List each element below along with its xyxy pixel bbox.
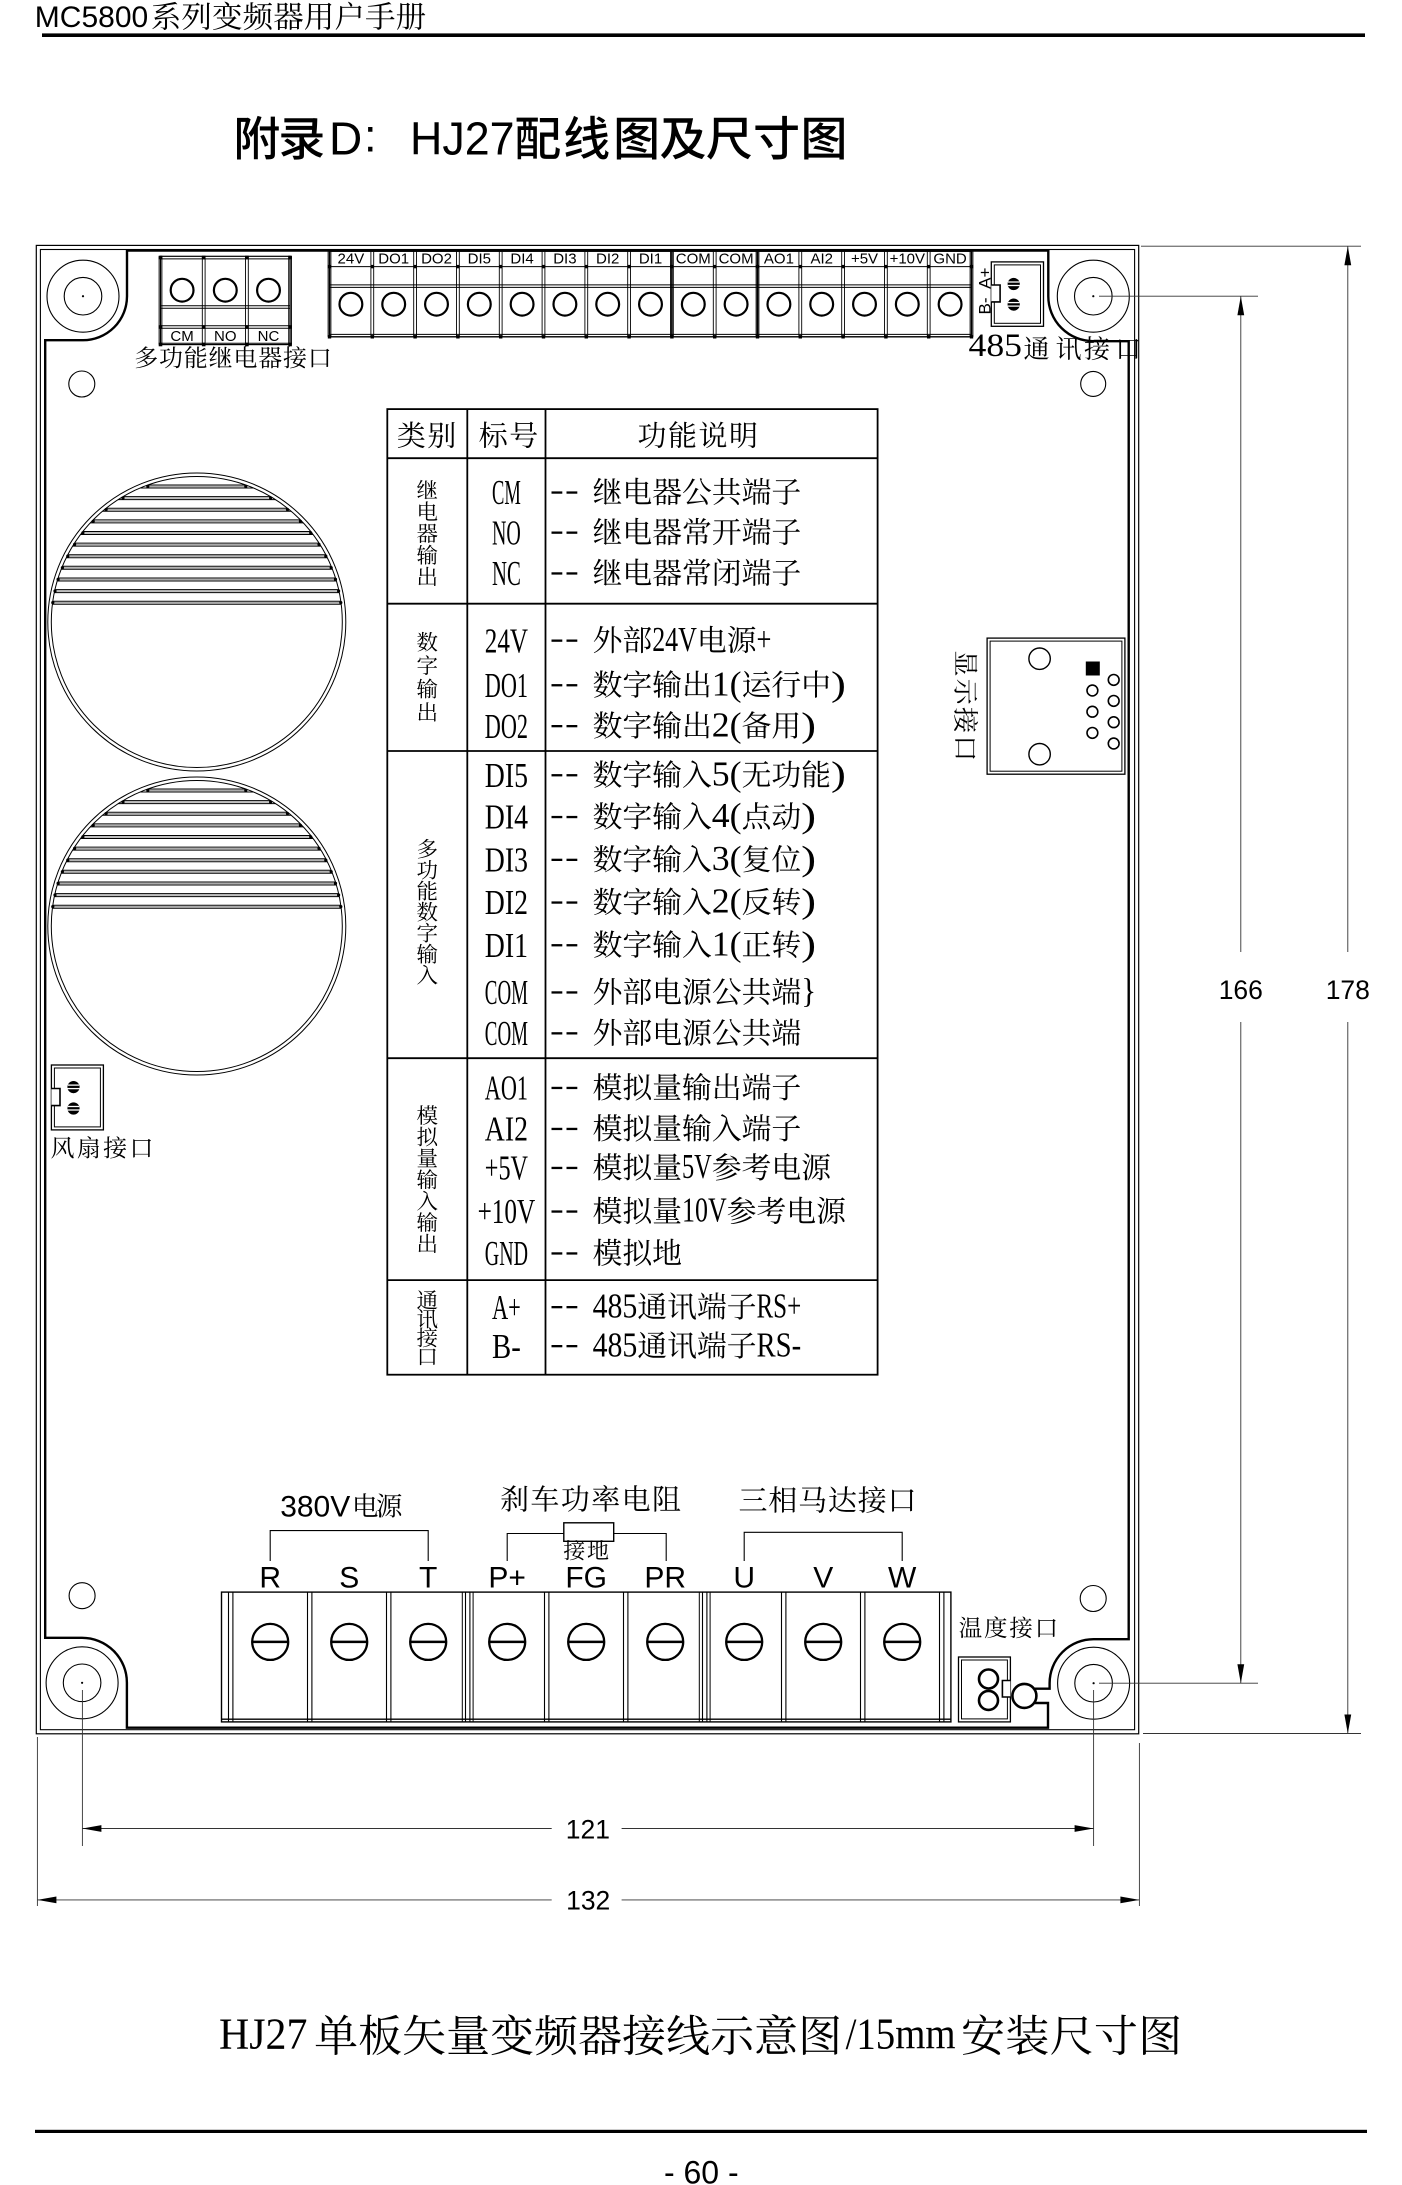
svg-text:COM: COM: [676, 251, 711, 268]
svg-text:485: 485: [593, 1286, 638, 1325]
svg-text:W: W: [888, 1562, 917, 1595]
svg-text:): ): [831, 664, 846, 703]
svg-text:GND: GND: [933, 251, 967, 268]
svg-text:24V: 24V: [485, 621, 528, 660]
svg-text:DI2: DI2: [485, 883, 528, 922]
svg-text:DI5: DI5: [468, 251, 491, 268]
svg-text:NO: NO: [492, 513, 521, 552]
svg-text:AO1: AO1: [764, 251, 794, 268]
svg-text:DI5: DI5: [485, 756, 528, 795]
svg-text:V: V: [813, 1562, 833, 1595]
svg-text:R: R: [259, 1562, 281, 1595]
svg-text:GND: GND: [485, 1234, 528, 1273]
svg-text:+: +: [757, 620, 772, 659]
svg-text:PR: PR: [644, 1562, 686, 1595]
svg-text:DI4: DI4: [485, 798, 528, 837]
svg-text:DI3: DI3: [553, 251, 576, 268]
svg-text:S: S: [339, 1562, 359, 1595]
svg-text:DI3: DI3: [485, 841, 528, 880]
svg-text:5(: 5(: [712, 754, 742, 793]
svg-text:NO: NO: [214, 328, 237, 345]
svg-text:): ): [831, 754, 846, 793]
svg-text:10V: 10V: [682, 1191, 727, 1230]
svg-text:): ): [801, 796, 816, 835]
svg-text:): ): [801, 839, 816, 878]
svg-text:- 60 -: - 60 -: [664, 2155, 739, 2185]
svg-text:DO2: DO2: [421, 251, 452, 268]
svg-text:2(: 2(: [712, 705, 742, 744]
svg-text:): ): [801, 705, 816, 744]
svg-text:B-: B-: [976, 298, 995, 315]
svg-text:COM: COM: [719, 251, 754, 268]
svg-text:T: T: [419, 1562, 437, 1595]
svg-text:485: 485: [593, 1325, 638, 1364]
svg-text:RS-: RS-: [757, 1325, 802, 1364]
svg-text:B-: B-: [492, 1327, 521, 1366]
svg-text:3(: 3(: [712, 839, 742, 878]
svg-text:NC: NC: [258, 328, 280, 345]
svg-text:+5V: +5V: [851, 251, 878, 268]
svg-text:DO1: DO1: [485, 666, 528, 705]
svg-text:+10V: +10V: [478, 1192, 536, 1231]
svg-text:380V: 380V: [280, 1491, 350, 1524]
svg-text:D: D: [329, 112, 362, 164]
svg-text:/15mm: /15mm: [846, 2010, 956, 2059]
svg-text:FG: FG: [565, 1562, 607, 1595]
svg-text:MC5800: MC5800: [35, 1, 148, 34]
svg-text:AI2: AI2: [485, 1110, 528, 1149]
svg-text:): ): [801, 882, 816, 921]
svg-text:HJ27: HJ27: [219, 2010, 307, 2059]
svg-text:24V: 24V: [652, 620, 697, 659]
svg-text:DI1: DI1: [485, 926, 528, 965]
svg-text:5V: 5V: [682, 1147, 712, 1186]
svg-text:24V: 24V: [338, 251, 365, 268]
svg-text:P+: P+: [488, 1562, 526, 1595]
svg-text:AI2: AI2: [810, 251, 833, 268]
svg-text:}: }: [801, 972, 816, 1011]
svg-text:RS+: RS+: [757, 1286, 802, 1325]
svg-text:DI2: DI2: [596, 251, 619, 268]
svg-text:DO1: DO1: [378, 251, 409, 268]
svg-text:1(: 1(: [712, 924, 742, 963]
svg-text:DO2: DO2: [485, 707, 528, 746]
svg-text:COM: COM: [485, 1014, 528, 1053]
svg-text:132: 132: [566, 1885, 610, 1915]
svg-text:1(: 1(: [712, 664, 742, 703]
svg-text:): ): [801, 924, 816, 963]
svg-text:A+: A+: [492, 1288, 521, 1327]
svg-text:CM: CM: [492, 473, 521, 512]
svg-text:NC: NC: [492, 554, 521, 593]
svg-text:COM: COM: [485, 973, 528, 1012]
svg-text:CM: CM: [170, 328, 193, 345]
svg-text:AO1: AO1: [485, 1069, 528, 1108]
svg-text:166: 166: [1219, 975, 1263, 1005]
svg-text:HJ27: HJ27: [410, 112, 515, 164]
svg-text:485: 485: [969, 328, 1023, 364]
svg-text:+10V: +10V: [890, 251, 925, 268]
svg-text:178: 178: [1326, 975, 1370, 1005]
svg-text:121: 121: [566, 1814, 610, 1844]
svg-text:4(: 4(: [712, 796, 742, 835]
svg-text:DI4: DI4: [510, 251, 533, 268]
svg-text:+5V: +5V: [485, 1149, 528, 1188]
svg-text:2(: 2(: [712, 882, 742, 921]
svg-text::: :: [364, 110, 377, 162]
svg-text:DI1: DI1: [639, 251, 662, 268]
svg-text:U: U: [733, 1562, 755, 1595]
svg-text:A+: A+: [976, 268, 995, 289]
